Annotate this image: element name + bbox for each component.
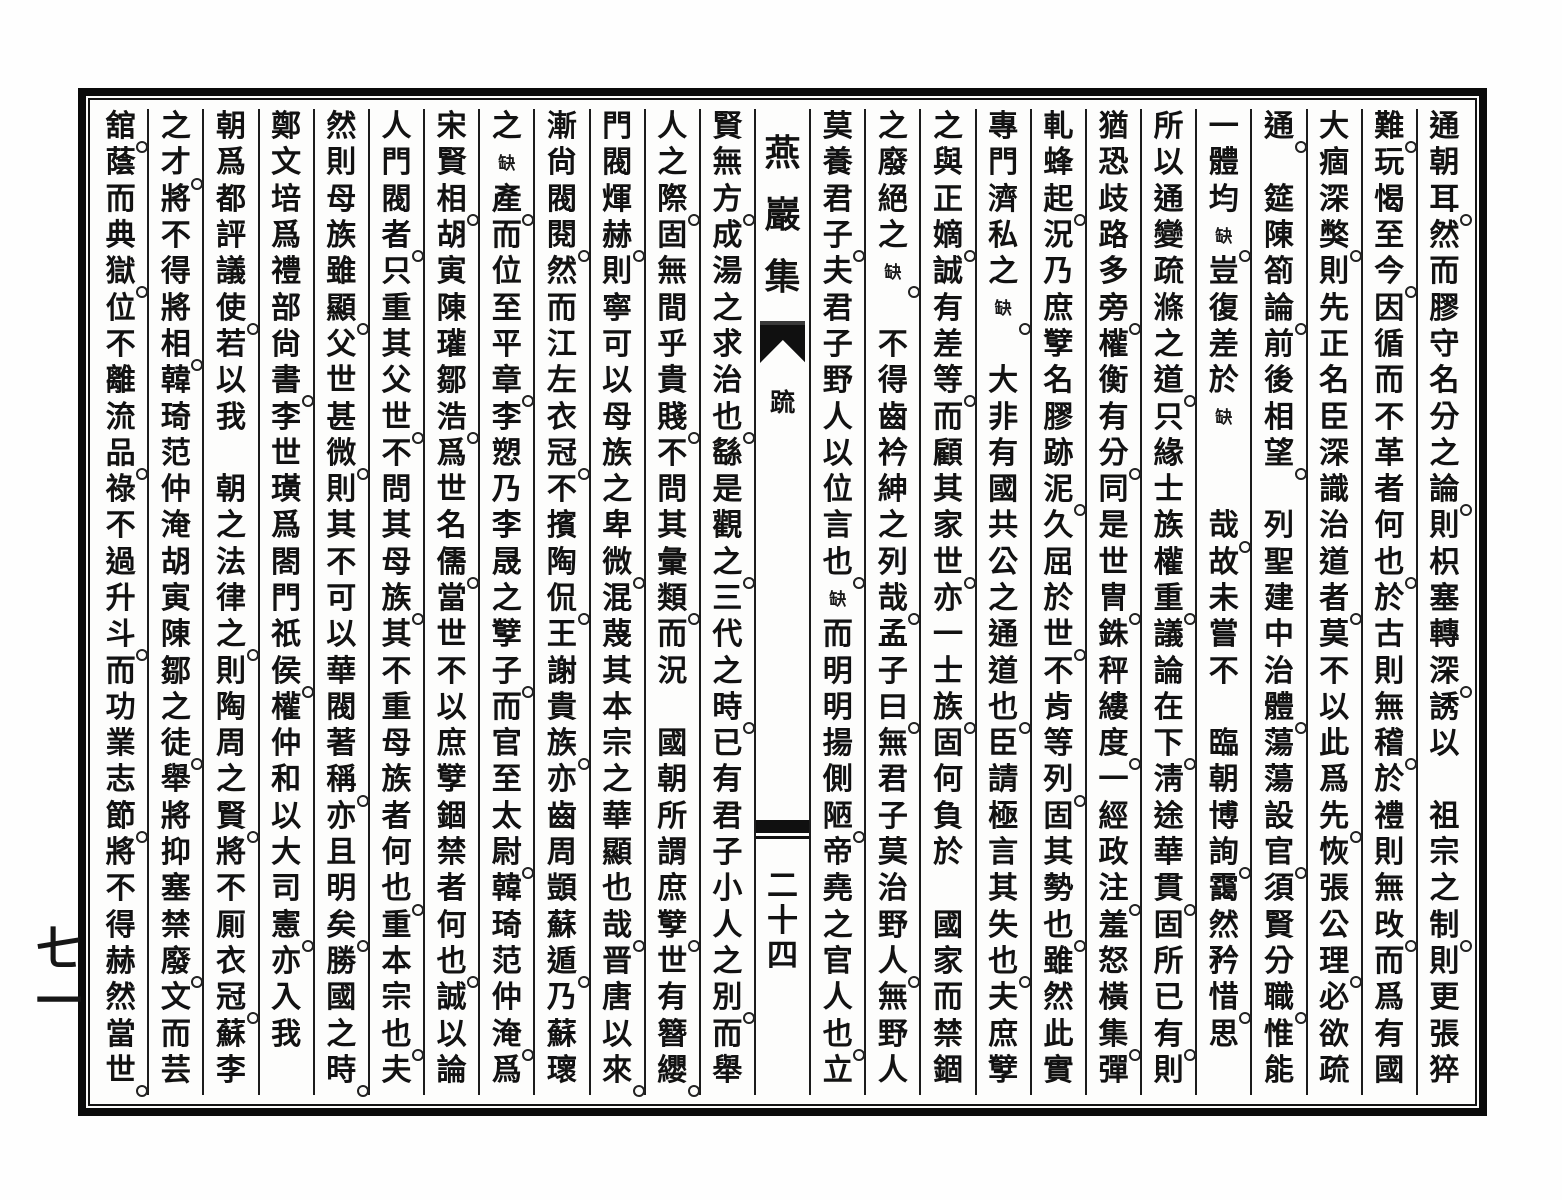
glyph: 微 (315, 436, 368, 472)
fishtail-ornament (760, 321, 806, 363)
glyph: 入 (260, 980, 313, 1016)
punctuation-circle (1129, 904, 1141, 916)
glyph: 功 (94, 690, 147, 726)
punctuation-circle (1350, 976, 1362, 988)
glyph: 之 (866, 218, 919, 254)
glyph: 哉 (866, 581, 919, 617)
glyph: 之 (480, 581, 533, 617)
glyph: 司 (260, 871, 313, 907)
glyph: 母 (370, 545, 423, 581)
glyph: 禮 (1363, 799, 1416, 835)
glyph: 賢 (1252, 908, 1305, 944)
glyph: 世 (1032, 617, 1085, 653)
glyph: 稱 (315, 762, 368, 798)
glyph: 膠 (1418, 290, 1471, 326)
glyph: 著 (315, 726, 368, 762)
glyph: 治 (866, 871, 919, 907)
glyph: 問 (370, 472, 423, 508)
glyph: 滌 (1142, 290, 1195, 326)
glyph: 有 (921, 290, 974, 326)
glyph: 不 (370, 653, 423, 689)
glyph: 禁 (149, 908, 202, 944)
glyph: 貴 (646, 363, 699, 399)
punctuation-circle (522, 1049, 534, 1061)
glyph: 以 (425, 1016, 478, 1052)
glyph: 重 (370, 690, 423, 726)
text-column: 莫養君子夫君子野人以位言也缺而明明揚側陋帝堯之官人也立 (809, 109, 864, 1095)
glyph: 位 (811, 472, 864, 508)
punctuation-circle (853, 1049, 865, 1061)
glyph: 蔑 (591, 617, 644, 653)
glyph: 蜂 (1032, 145, 1085, 181)
glyph: 爲 (260, 218, 313, 254)
glyph: 軋 (1032, 109, 1085, 145)
punctuation-circle (1239, 541, 1251, 553)
punctuation-circle (467, 214, 479, 226)
glyph: 族 (535, 726, 588, 762)
glyph: 正 (921, 182, 974, 218)
glyph: 集 (765, 243, 801, 305)
book-page-scan: 通朝耳然而膠守名分之論則枳塞轉深誘以祖宗之制則更張猝難玩愒至今因循而不革者何也於… (0, 0, 1562, 1200)
glyph: 而 (921, 980, 974, 1016)
glyph: 其 (646, 508, 699, 544)
glyph: 宗 (1418, 835, 1471, 871)
glyph: 華 (591, 799, 644, 835)
glyph: 離 (94, 363, 147, 399)
glyph: 瓘 (425, 327, 478, 363)
glyph: 枳 (1418, 545, 1471, 581)
glyph: 跡 (1032, 436, 1085, 472)
glyph: 族 (370, 581, 423, 617)
glyph: 以 (204, 363, 257, 399)
glyph: 而 (94, 182, 147, 218)
glyph: 野 (811, 363, 864, 399)
glyph: 子 (811, 327, 864, 363)
punctuation-circle (357, 795, 369, 807)
glyph: 耳 (1418, 182, 1471, 218)
glyph: 治 (701, 363, 754, 399)
glyph: 於 (1032, 581, 1085, 617)
glyph: 國 (315, 980, 368, 1016)
glyph: 於 (921, 835, 974, 871)
glyph: 其 (1032, 835, 1085, 871)
text-grid: 通朝耳然而膠守名分之論則枳塞轉深誘以祖宗之制則更張猝難玩愒至今因循而不革者何也於… (90, 100, 1475, 1104)
glyph: 缺 (977, 290, 1030, 326)
glyph: 無 (646, 254, 699, 290)
glyph: 燕 (765, 119, 801, 181)
text-column: 之與正嫡誠有差等而顧其家世亦一士族固何負於國家而禁錮 (919, 109, 974, 1095)
glyph: 歧 (1087, 182, 1140, 218)
glyph: 卑 (591, 508, 644, 544)
punctuation-circle (302, 940, 314, 952)
punctuation-circle (357, 940, 369, 952)
glyph: 典 (94, 218, 147, 254)
glyph: 鄭 (260, 109, 313, 145)
glyph: 仲 (149, 472, 202, 508)
glyph: 彙 (646, 545, 699, 581)
glyph: 冠 (535, 436, 588, 472)
glyph: 也 (701, 399, 754, 435)
glyph: 乃 (480, 472, 533, 508)
glyph: 無 (701, 145, 754, 181)
glyph: 范 (480, 944, 533, 980)
glyph: 明 (811, 653, 864, 689)
glyph: 至 (480, 290, 533, 326)
glyph: 也 (977, 690, 1030, 726)
glyph: 之 (701, 653, 754, 689)
glyph: 憲 (260, 908, 313, 944)
glyph: 矜 (1197, 944, 1250, 980)
glyph: 守 (1418, 327, 1471, 363)
punctuation-circle (1295, 468, 1307, 480)
glyph: 孼 (480, 617, 533, 653)
glyph: 將 (149, 799, 202, 835)
glyph: 寧 (591, 290, 644, 326)
glyph: 品 (94, 436, 147, 472)
punctuation-circle (578, 613, 590, 625)
punctuation-circle (191, 178, 203, 190)
glyph: 子 (480, 653, 533, 689)
glyph: 然 (1197, 908, 1250, 944)
glyph: 論 (1418, 472, 1471, 508)
glyph: 其 (370, 508, 423, 544)
glyph: 愬 (480, 436, 533, 472)
glyph: 於 (1197, 363, 1250, 399)
glyph: 母 (315, 182, 368, 218)
glyph: 者 (1363, 472, 1416, 508)
glyph: 言 (977, 835, 1030, 871)
glyph: 膠 (1032, 399, 1085, 435)
folio-page-number: 二十四 (756, 865, 809, 970)
glyph: 使 (204, 290, 257, 326)
glyph: 疏 (1308, 1053, 1361, 1089)
glyph: 家 (921, 944, 974, 980)
glyph: 以 (591, 363, 644, 399)
glyph: 人 (701, 908, 754, 944)
glyph: 先 (1308, 290, 1361, 326)
glyph: 而 (811, 617, 864, 653)
glyph: 多 (1087, 254, 1140, 290)
glyph: 識 (1308, 472, 1361, 508)
glyph: 門 (977, 145, 1030, 181)
glyph: 以 (425, 690, 478, 726)
punctuation-circle (1460, 686, 1472, 698)
punctuation-circle (1129, 468, 1141, 480)
glyph: 本 (591, 690, 644, 726)
glyph: 顯 (591, 835, 644, 871)
glyph: 母 (591, 399, 644, 435)
glyph: 徒 (149, 726, 202, 762)
glyph: 世 (260, 436, 313, 472)
glyph: 缺 (480, 145, 533, 181)
glyph: 貴 (535, 690, 588, 726)
glyph: 均 (1197, 182, 1250, 218)
glyph: 相 (149, 327, 202, 363)
glyph: 瓌 (535, 1053, 588, 1089)
glyph: 張 (1308, 871, 1361, 907)
glyph: 箚 (1252, 254, 1305, 290)
glyph: 家 (921, 508, 974, 544)
glyph: 養 (811, 145, 864, 181)
glyph: 循 (1363, 327, 1416, 363)
punctuation-circle (633, 250, 645, 262)
glyph: 賤 (646, 399, 699, 435)
punctuation-circle (743, 432, 755, 444)
text-column: 然則母族雖顯父世甚微則其不可以華閥著稱亦且明矣勝國之時 (313, 109, 368, 1095)
glyph: 書 (260, 363, 313, 399)
glyph: 塞 (1418, 581, 1471, 617)
glyph: 厠 (204, 908, 257, 944)
glyph: 重 (370, 290, 423, 326)
glyph: 謂 (646, 835, 699, 871)
glyph: 陶 (204, 690, 257, 726)
glyph: 道 (977, 653, 1030, 689)
punctuation-circle (1405, 577, 1417, 589)
glyph: 尙 (260, 327, 313, 363)
glyph: 之 (701, 290, 754, 326)
glyph: 巖 (765, 181, 801, 243)
glyph: 變 (1142, 218, 1195, 254)
glyph: 太 (480, 799, 533, 835)
glyph: 小 (701, 871, 754, 907)
glyph: 則 (1363, 653, 1416, 689)
glyph: 未 (1197, 581, 1250, 617)
glyph: 通 (1418, 109, 1471, 145)
glyph: 嫡 (921, 218, 974, 254)
text-column: 人之際固無間乎貴賤不問其彙類而況國朝所謂庶孼世有簪纓 (644, 109, 699, 1095)
glyph: 文 (260, 145, 313, 181)
glyph: 貫 (1142, 871, 1195, 907)
glyph: 共 (977, 508, 1030, 544)
glyph: 哉 (591, 908, 644, 944)
glyph: 江 (535, 327, 588, 363)
glyph: 其 (315, 508, 368, 544)
glyph: 顗 (535, 871, 588, 907)
glyph: 可 (315, 581, 368, 617)
glyph: 禁 (921, 1016, 974, 1052)
punctuation-circle (964, 395, 976, 407)
glyph: 廢 (866, 145, 919, 181)
text-column: 人門閥者只重其父世不問其母族其不重母族者何也重本宗也夫 (368, 109, 423, 1095)
glyph: 閤 (260, 545, 313, 581)
glyph: 朝 (1197, 762, 1250, 798)
glyph: 也 (811, 545, 864, 581)
glyph: 方 (701, 182, 754, 218)
glyph: 屈 (1032, 545, 1085, 581)
punctuation-circle (412, 1049, 424, 1061)
glyph: 琦 (149, 399, 202, 435)
glyph: 不 (315, 545, 368, 581)
glyph: 明 (315, 871, 368, 907)
punctuation-circle (1295, 722, 1307, 734)
punctuation-circle (247, 1012, 259, 1024)
glyph: 宗 (370, 980, 423, 1016)
glyph: 之 (646, 145, 699, 181)
glyph: 所 (1142, 109, 1195, 145)
glyph: 欲 (1308, 1016, 1361, 1052)
glyph: 別 (701, 980, 754, 1016)
folio-center-column: 燕巖集 䟽 二十四 (754, 109, 809, 1095)
punctuation-circle (1295, 141, 1307, 153)
glyph: 通 (1252, 109, 1305, 145)
glyph: 曰 (866, 690, 919, 726)
punctuation-circle (1460, 940, 1472, 952)
text-column: 專門濟私之缺大非有國共公之通道也臣請極言其失也夫庶孼 (975, 109, 1030, 1095)
glyph: 求 (701, 327, 754, 363)
glyph: 則 (1363, 835, 1416, 871)
glyph: 有 (1142, 1016, 1195, 1052)
punctuation-circle (1295, 1012, 1307, 1024)
glyph: 請 (977, 762, 1030, 798)
glyph: 甚 (315, 399, 368, 435)
glyph: 負 (921, 799, 974, 835)
glyph: 周 (535, 835, 588, 871)
glyph: 明 (811, 690, 864, 726)
glyph: 衿 (866, 436, 919, 472)
text-column: 漸尙閥閱然而江左衣冠不擯陶侃王謝貴族亦齒周顗蘇遁乃蘇瓌 (533, 109, 588, 1095)
glyph: 璜 (260, 472, 313, 508)
glyph: 泥 (1032, 472, 1085, 508)
glyph: 以 (591, 1016, 644, 1052)
glyph: 以 (260, 799, 313, 835)
glyph: 大 (1308, 109, 1361, 145)
glyph: 子 (811, 218, 864, 254)
glyph: 官 (811, 944, 864, 980)
glyph: 之 (866, 109, 919, 145)
glyph: 深 (1418, 653, 1471, 689)
glyph: 而 (535, 290, 588, 326)
glyph: 范 (149, 436, 202, 472)
punctuation-circle (1295, 867, 1307, 879)
glyph: 子 (866, 653, 919, 689)
glyph: 寅 (425, 254, 478, 290)
glyph: 古 (1363, 617, 1416, 653)
punctuation-circle (357, 468, 369, 480)
glyph: 之 (204, 762, 257, 798)
glyph: 淹 (480, 1016, 533, 1052)
glyph: 庶 (977, 1016, 1030, 1052)
glyph: 體 (1252, 690, 1305, 726)
glyph: 蕩 (1252, 762, 1305, 798)
punctuation-circle (1019, 323, 1031, 335)
glyph: 人 (811, 399, 864, 435)
glyph: 衣 (204, 944, 257, 980)
punctuation-circle (1184, 904, 1196, 916)
glyph: 世 (425, 617, 478, 653)
glyph: 人 (646, 109, 699, 145)
glyph: 之 (811, 908, 864, 944)
glyph: 世 (921, 545, 974, 581)
glyph: 哉 (1197, 508, 1250, 544)
page-frame-inner: 通朝耳然而膠守名分之論則枳塞轉深誘以祖宗之制則更張猝難玩愒至今因循而不革者何也於… (88, 98, 1477, 1106)
glyph: 淹 (149, 508, 202, 544)
glyph: 族 (1142, 508, 1195, 544)
glyph: 已 (1142, 980, 1195, 1016)
glyph: 庶 (646, 871, 699, 907)
glyph: 詢 (1197, 835, 1250, 871)
glyph: 陳 (1252, 218, 1305, 254)
glyph: 而 (1363, 363, 1416, 399)
text-column: 猶恐歧路多旁權衡有分同是世冑銖秤縷度一經政注羞怒橫集彈 (1085, 109, 1140, 1095)
glyph: 名 (1032, 363, 1085, 399)
glyph: 不 (425, 653, 478, 689)
glyph: 之 (977, 581, 1030, 617)
glyph: 大 (977, 363, 1030, 399)
glyph: 不 (1363, 399, 1416, 435)
glyph: 爲 (260, 508, 313, 544)
glyph: 陶 (535, 545, 588, 581)
folio-divider-bar (756, 820, 809, 839)
punctuation-circle (633, 577, 645, 589)
glyph: 官 (480, 726, 533, 762)
glyph: 和 (260, 762, 313, 798)
glyph: 而 (149, 1016, 202, 1052)
glyph: 乎 (646, 327, 699, 363)
glyph: 名 (1418, 363, 1471, 399)
punctuation-circle (1129, 1049, 1141, 1061)
glyph: 道 (1308, 545, 1361, 581)
glyph: 何 (921, 762, 974, 798)
glyph: 不 (204, 871, 257, 907)
glyph: 國 (646, 726, 699, 762)
glyph: 齒 (866, 399, 919, 435)
glyph: 分 (1087, 436, 1140, 472)
glyph: 閱 (535, 218, 588, 254)
glyph: 間 (646, 290, 699, 326)
glyph: 缺 (866, 254, 919, 290)
glyph: 缺 (1197, 399, 1250, 435)
text-column: 門閥煇赫則寧可以母族之卑微混蔑其本宗之華顯也哉晋唐以來 (589, 109, 644, 1095)
punctuation-circle (357, 1085, 369, 1097)
glyph: 所 (646, 799, 699, 835)
glyph: 公 (1308, 908, 1361, 944)
glyph: 有 (701, 762, 754, 798)
glyph: 側 (811, 762, 864, 798)
glyph: 塞 (149, 871, 202, 907)
glyph: 差 (1197, 327, 1250, 363)
glyph: 大 (260, 835, 313, 871)
section-label: 䟽 (756, 383, 809, 419)
glyph: 世 (425, 472, 478, 508)
glyph: 橫 (1087, 980, 1140, 1016)
glyph: 法 (204, 545, 257, 581)
glyph: 議 (204, 254, 257, 290)
glyph: 是 (701, 472, 754, 508)
glyph: 衡 (1087, 363, 1140, 399)
punctuation-circle (1074, 795, 1086, 807)
glyph: 得 (149, 254, 202, 290)
glyph: 一 (36, 972, 82, 1024)
glyph: 何 (1363, 508, 1416, 544)
glyph: 況 (646, 653, 699, 689)
glyph: 產 (480, 182, 533, 218)
glyph: 緣 (1142, 436, 1195, 472)
glyph: 時 (701, 690, 754, 726)
glyph: 政 (1087, 835, 1140, 871)
glyph: 矣 (315, 908, 368, 944)
text-column: 宋賢相胡寅陳瓘鄒浩爲世名儒當世不以庶孼錮禁者何也誠以論 (423, 109, 478, 1095)
glyph: 君 (866, 762, 919, 798)
punctuation-circle (1295, 323, 1307, 335)
glyph: 不 (1308, 653, 1361, 689)
glyph: 其 (591, 653, 644, 689)
glyph: 也 (425, 944, 478, 980)
glyph: 我 (260, 1016, 313, 1052)
glyph: 先 (1308, 799, 1361, 835)
glyph: 不 (94, 508, 147, 544)
glyph: 律 (204, 581, 257, 617)
glyph: 朝 (1418, 145, 1471, 181)
